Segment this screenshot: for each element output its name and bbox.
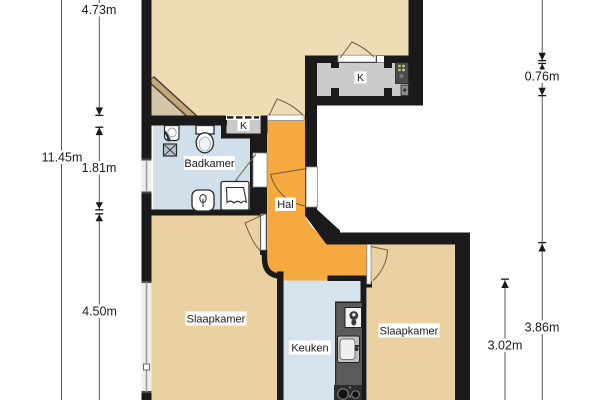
svg-text:Badkamer: Badkamer (184, 158, 234, 170)
svg-text:4.50m: 4.50m (82, 305, 117, 319)
svg-text:3.86m: 3.86m (525, 321, 560, 335)
svg-text:Slaapkamer: Slaapkamer (380, 326, 439, 338)
svg-text:Keuken: Keuken (291, 343, 328, 355)
svg-text:4.73m: 4.73m (82, 3, 117, 17)
svg-text:Hal: Hal (277, 199, 294, 211)
svg-text:11.45m: 11.45m (42, 151, 83, 165)
svg-text:1.81m: 1.81m (82, 161, 117, 175)
svg-text:0.76m: 0.76m (525, 70, 560, 84)
svg-text:Slaapkamer: Slaapkamer (187, 314, 246, 326)
svg-text:K: K (357, 72, 364, 84)
svg-text:3.02m: 3.02m (488, 339, 523, 353)
svg-text:K: K (240, 120, 247, 132)
